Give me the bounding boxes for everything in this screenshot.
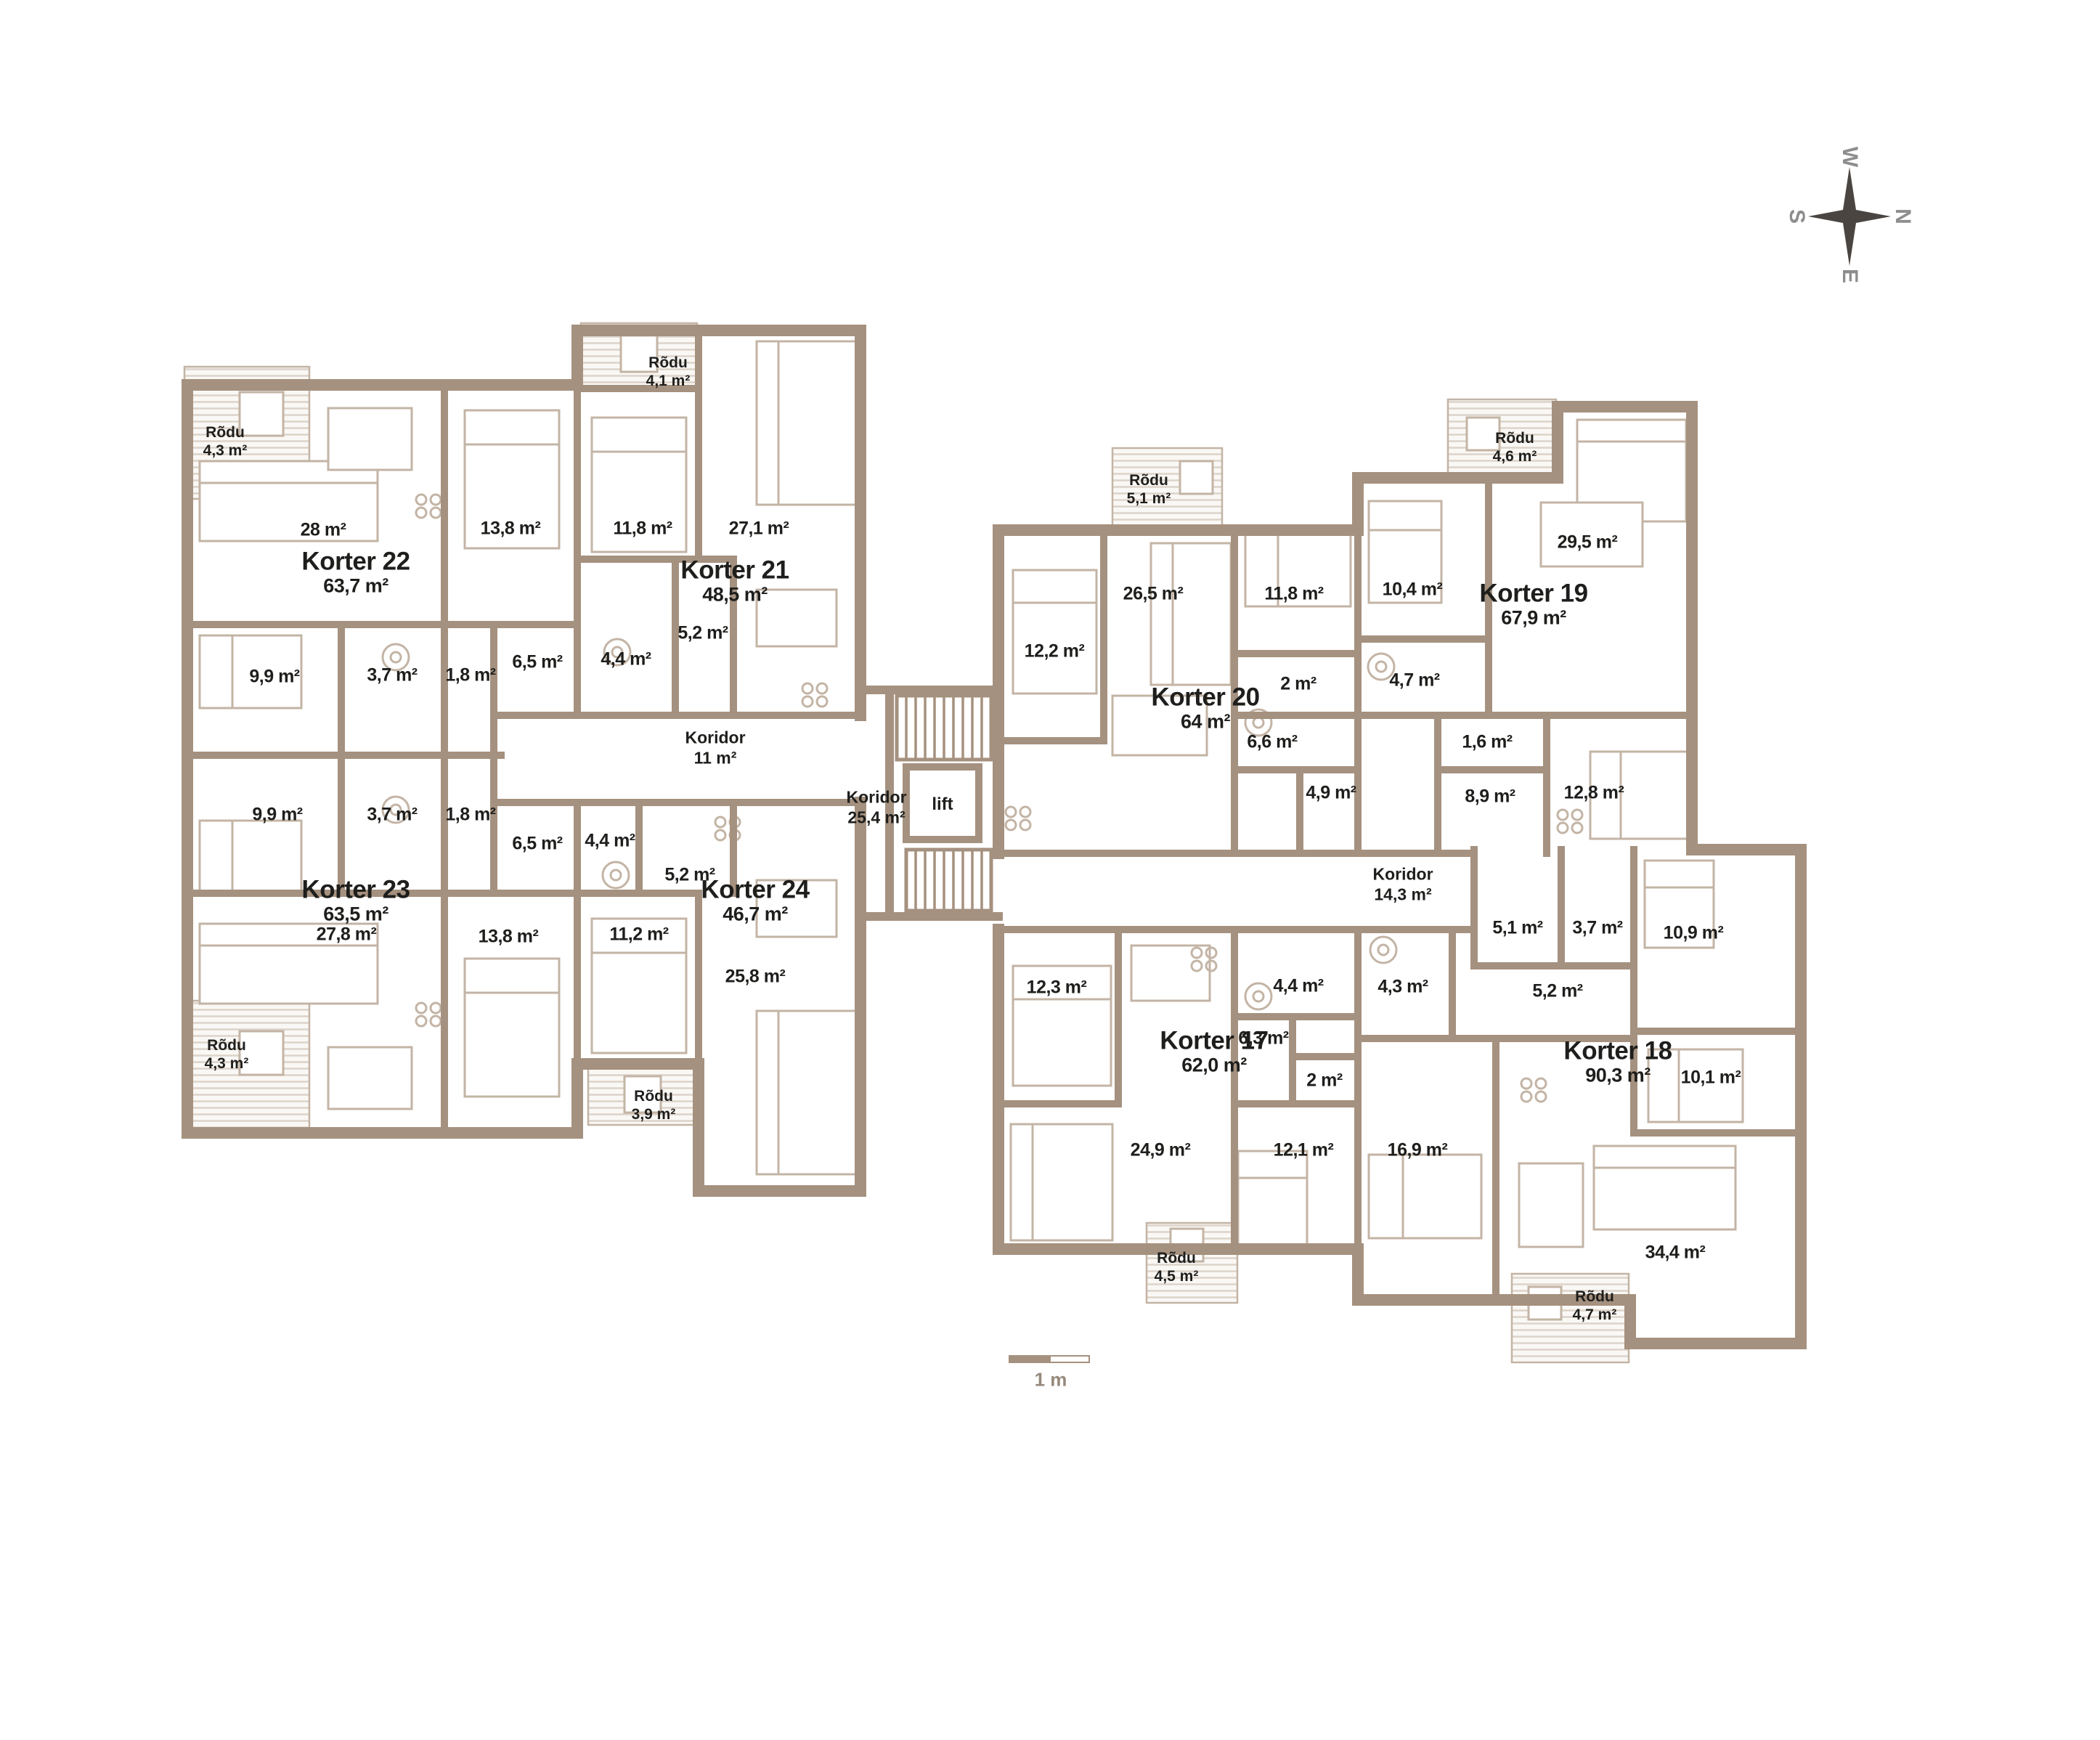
apartment-label-k19: Korter 19 67,9 m² [1479, 580, 1587, 627]
apartment-name: Korter 21 [680, 557, 789, 584]
balcony-name: Rõdu [632, 1087, 676, 1105]
floor-plan: Korter 22 63,7 m² Korter 23 63,5 m² Kort… [0, 0, 2100, 1740]
balcony-label-k18: Rõdu 4,7 m² [1573, 1288, 1617, 1324]
room-area-k19-living: 29,5 m² [1558, 532, 1618, 553]
corridor-area: 14,3 m² [1372, 885, 1433, 905]
apartment-name: Korter 24 [701, 877, 809, 903]
room-area-k17-living: 24,9 m² [1131, 1140, 1191, 1161]
room-area-k21-hall: 5,2 m² [677, 623, 728, 644]
balcony-area: 4,6 m² [1493, 447, 1537, 466]
apartment-area: 63,7 m² [301, 575, 410, 595]
room-area-k18-hall1: 5,1 m² [1492, 918, 1542, 939]
apartment-label-k18: Korter 18 90,3 m² [1563, 1038, 1672, 1085]
corridor-label-25: Koridor 25,4 m² [846, 787, 906, 827]
apartment-label-k23: Korter 23 63,5 m² [301, 877, 410, 924]
apartment-name: Korter 19 [1479, 580, 1587, 607]
balcony-name: Rõdu [205, 1036, 249, 1054]
compass-star-icon [1808, 167, 1891, 266]
room-area-k24-bath: 4,4 m² [585, 831, 635, 852]
room-area-k21-bedroom: 11,8 m² [613, 519, 672, 540]
corridor-name: Koridor [685, 728, 745, 748]
apartment-label-k24: Korter 24 46,7 m² [701, 877, 809, 924]
balcony-label-k19: Rõdu 4,6 m² [1493, 429, 1537, 466]
stairs-lower [906, 850, 991, 911]
balcony-label-k24: Rõdu 3,9 m² [632, 1087, 676, 1123]
room-area-k18-hall2: 3,7 m² [1572, 918, 1622, 939]
room-area-k23-wc: 1,8 m² [445, 805, 495, 826]
apartment-area: 48,5 m² [680, 584, 789, 604]
floor-plan-drawing [0, 0, 2100, 1740]
corridor-name: Koridor [846, 787, 906, 808]
apartment-label-k22: Korter 22 63,7 m² [301, 548, 410, 595]
corridor-name: Koridor [1372, 864, 1433, 885]
bed-icons [200, 410, 1743, 1245]
room-area-k23-hall: 6,5 m² [512, 834, 562, 855]
scale-bar-outline [1049, 1355, 1090, 1363]
room-area-k17-bath: 4,4 m² [1273, 976, 1323, 997]
room-area-k17-bedroom1: 12,3 m² [1027, 977, 1087, 999]
compass-north-label: N [1890, 208, 1915, 224]
balcony-area: 4,7 m² [1573, 1306, 1617, 1324]
room-area-k22-bedroom1: 13,8 m² [481, 519, 541, 540]
room-area-k22-wc: 1,8 m² [445, 665, 495, 686]
room-area-k20-hall: 6,6 m² [1247, 732, 1297, 753]
balcony-area: 4,3 m² [205, 1054, 249, 1073]
apartment-area: 46,7 m² [701, 903, 809, 924]
room-area-k23-bedroom1: 13,8 m² [479, 927, 539, 948]
room-area-k24-hall: 5,2 m² [664, 865, 715, 886]
balcony-name: Rõdu [1127, 471, 1171, 489]
room-area-k20-bedroom2: 11,8 m² [1264, 584, 1323, 605]
room-area-k22-living: 28 m² [301, 520, 346, 541]
balcony-area: 4,5 m² [1155, 1267, 1199, 1285]
lift-label: lift [932, 794, 953, 815]
compass-rose [1808, 167, 1891, 266]
balcony-label-k20: Rõdu 5,1 m² [1127, 471, 1171, 508]
apartment-name: Korter 22 [301, 548, 410, 575]
balcony-area: 4,1 m² [646, 372, 691, 390]
room-area-k18-hall3: 5,2 m² [1532, 981, 1582, 1002]
room-area-k22-hall: 6,5 m² [512, 652, 562, 673]
room-area-k20-bedroom1: 12,2 m² [1025, 641, 1085, 662]
room-area-k20-bath: 4,9 m² [1306, 783, 1356, 804]
balcony-area: 5,1 m² [1127, 489, 1171, 508]
apartment-area: 62,0 m² [1160, 1054, 1268, 1075]
room-area-k17-bedroom2: 12,1 m² [1274, 1140, 1334, 1161]
balcony-area: 4,3 m² [203, 442, 248, 460]
room-area-k17-wc: 2 m² [1306, 1070, 1342, 1091]
room-area-k19-bath: 4,7 m² [1389, 670, 1439, 691]
room-area-k20-living: 26,5 m² [1123, 584, 1184, 605]
room-area-k24-bedroom: 11,2 m² [609, 924, 668, 946]
room-area-k18-bath: 4,3 m² [1377, 977, 1428, 998]
corridor-area: 25,4 m² [846, 808, 906, 828]
corridor-label-11: Koridor 11 m² [685, 728, 745, 768]
room-area-k22-bedroom2: 9,9 m² [249, 667, 299, 688]
room-area-k22-closet: 3,7 m² [367, 665, 417, 686]
room-area-k19-bedroom1: 10,4 m² [1383, 580, 1443, 601]
balcony-name: Rõdu [1155, 1249, 1199, 1267]
room-area-k23-bedroom2: 9,9 m² [252, 805, 302, 826]
balcony-label-k17: Rõdu 4,5 m² [1155, 1249, 1199, 1285]
corridor-area: 11 m² [685, 748, 745, 768]
scale-bar-filled [1009, 1355, 1049, 1363]
compass-east-label: E [1837, 269, 1862, 283]
balcony-name: Rõdu [203, 423, 248, 442]
stairs-upper [897, 696, 991, 760]
apartment-area: 63,5 m² [301, 903, 410, 924]
room-area-k20-wc: 2 m² [1280, 674, 1316, 695]
apartment-area: 90,3 m² [1563, 1065, 1672, 1085]
balcony-name: Rõdu [1573, 1288, 1617, 1306]
apartment-area: 67,9 m² [1479, 607, 1587, 627]
room-area-k23-living: 27,8 m² [317, 924, 377, 946]
apartment-name: Korter 23 [301, 877, 410, 903]
corridor-label-14: Koridor 14,3 m² [1372, 864, 1433, 904]
balcony-label-k21: Rõdu 4,1 m² [646, 354, 691, 390]
room-area-k21-bath: 4,4 m² [601, 649, 651, 670]
room-area-k18-living: 34,4 m² [1645, 1243, 1706, 1264]
room-area-k18-bedroom1: 16,9 m² [1388, 1140, 1448, 1161]
apartment-area: 64 m² [1151, 711, 1259, 731]
apartment-label-k20: Korter 20 64 m² [1151, 684, 1259, 731]
room-area-k18-bedroom3: 10,1 m² [1681, 1068, 1741, 1089]
apartment-name: Korter 20 [1151, 684, 1259, 711]
room-area-k17-hall: 6,3 m² [1238, 1028, 1288, 1049]
balcony-label-k23: Rõdu 4,3 m² [205, 1036, 249, 1073]
balcony-label-k22: Rõdu 4,3 m² [203, 423, 248, 460]
balcony-name: Rõdu [1493, 429, 1537, 447]
room-area-k18-bedroom2: 10,9 m² [1664, 923, 1724, 944]
balcony-area: 3,9 m² [632, 1105, 676, 1123]
room-area-k19-wc: 1,6 m² [1462, 732, 1512, 753]
apartment-label-k21: Korter 21 48,5 m² [680, 557, 789, 604]
compass-west-label: W [1837, 147, 1862, 167]
apartment-name: Korter 18 [1563, 1038, 1672, 1065]
room-area-k19-bedroom2: 12,8 m² [1564, 783, 1624, 804]
balcony-name: Rõdu [646, 354, 691, 372]
room-area-k24-living: 25,8 m² [725, 967, 786, 988]
scale-label: 1 m [1035, 1369, 1067, 1391]
room-area-k19-hall: 8,9 m² [1465, 786, 1515, 808]
room-area-k23-closet: 3,7 m² [367, 805, 417, 826]
room-area-k21-living: 27,1 m² [729, 519, 789, 540]
compass-south-label: S [1784, 209, 1809, 224]
